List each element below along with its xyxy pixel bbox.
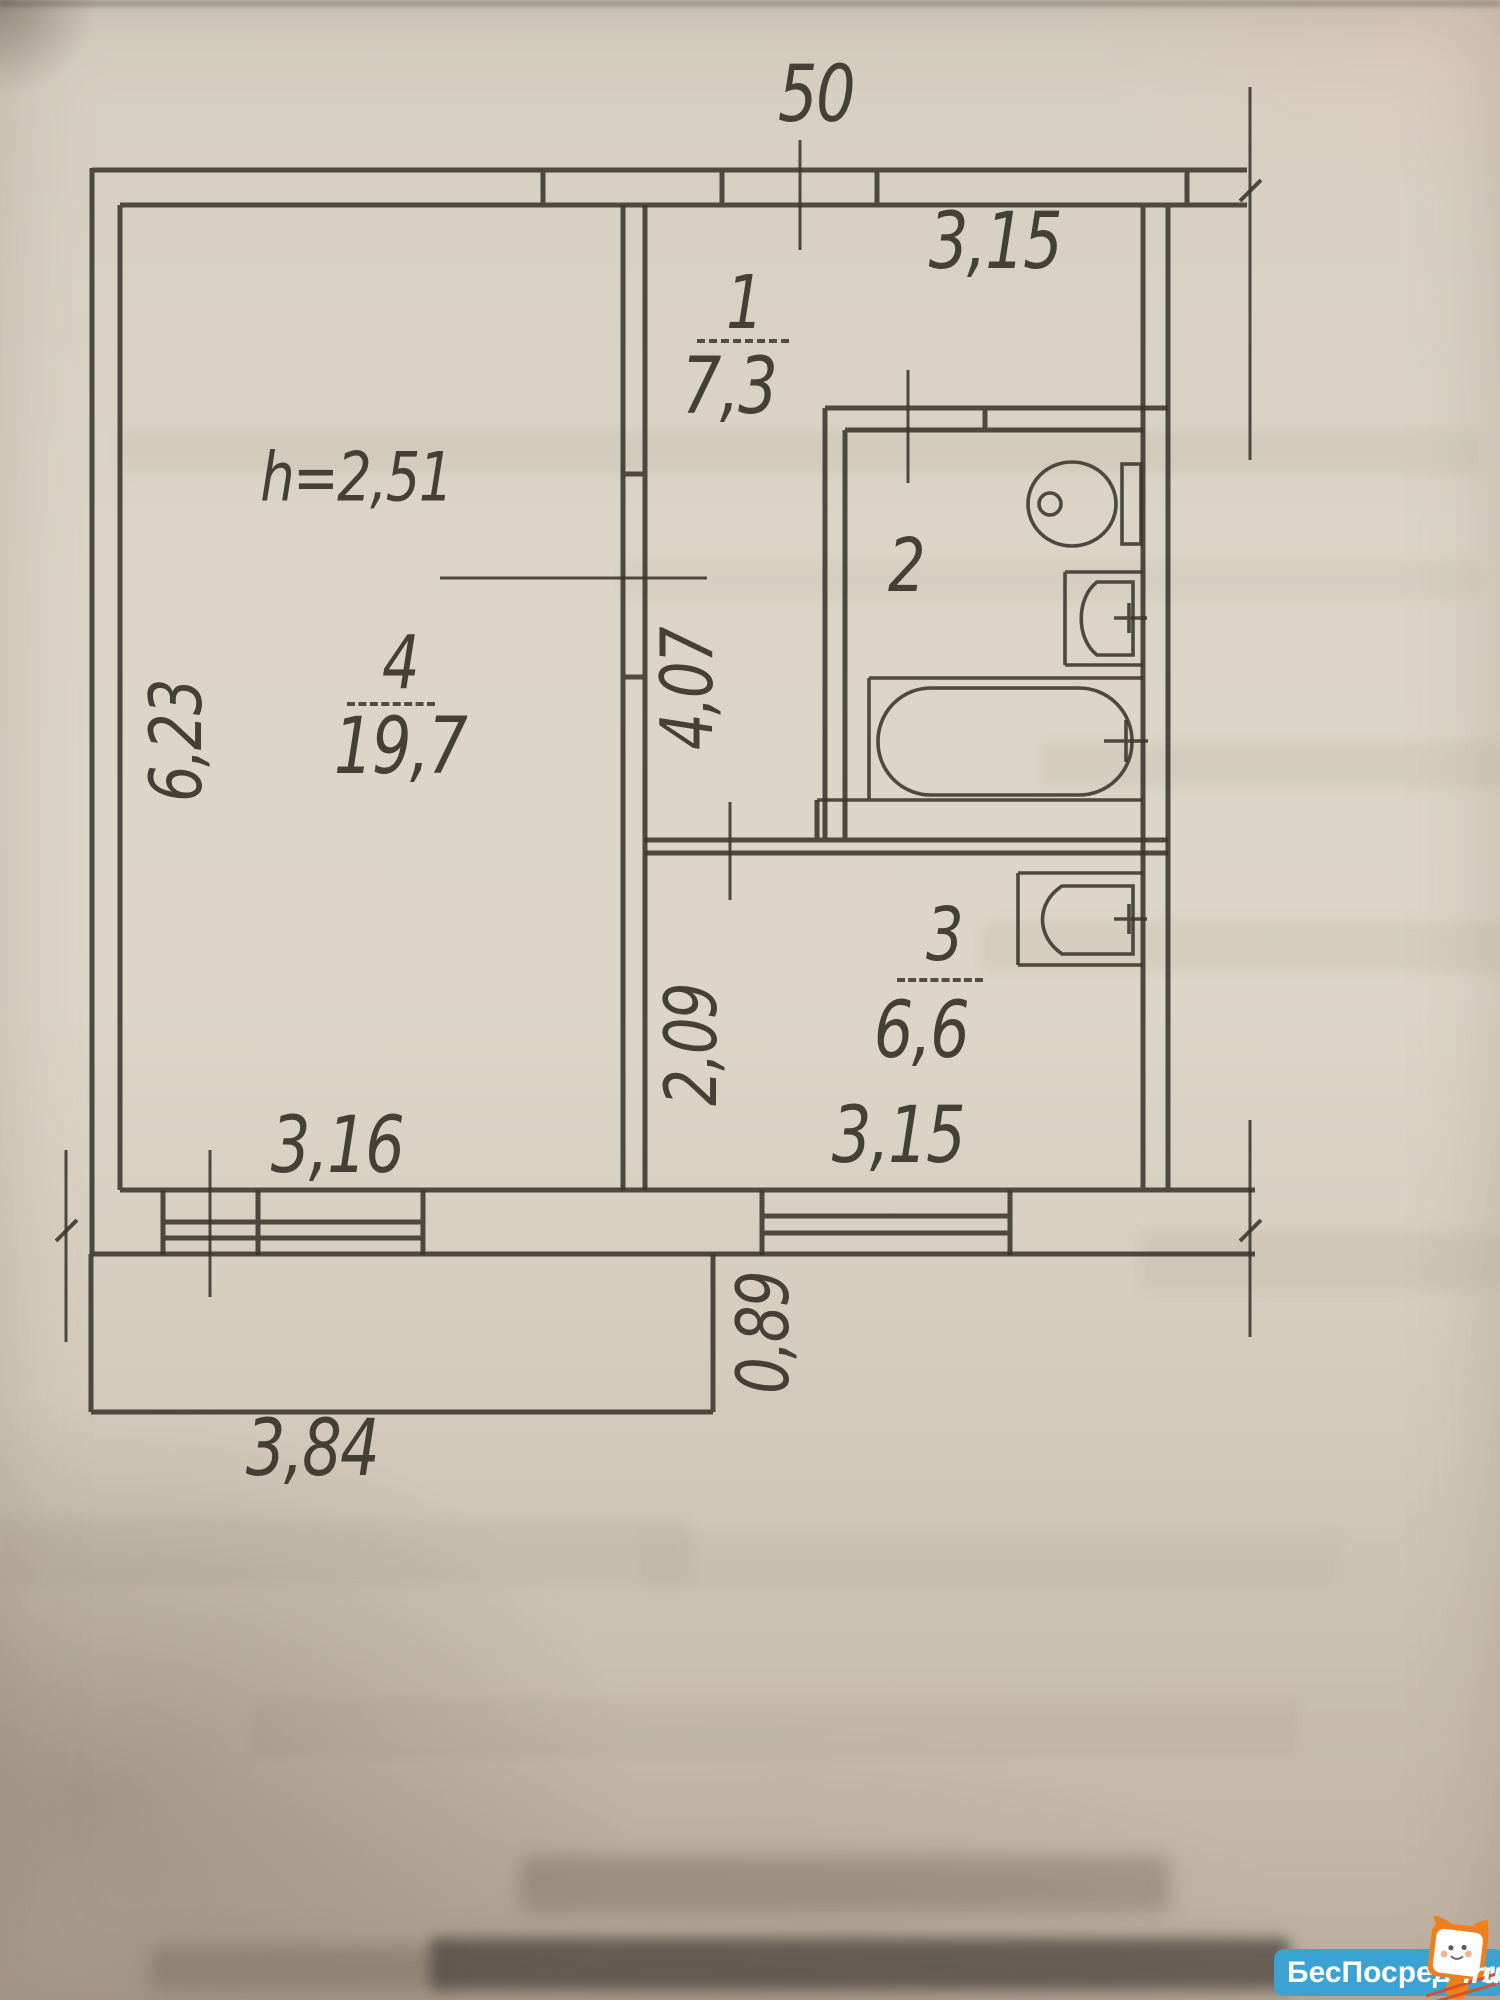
room3-number: 3 [926,892,962,978]
room1-area: 7,3 [682,342,776,432]
window-symbol [762,1190,1010,1255]
room4-area: 19,7 [334,702,467,792]
washbasin-icon [1065,572,1147,665]
dim-lower-left: 2,09 [649,984,733,1106]
bathtub-icon [817,678,1148,800]
dim-left-height: 6,23 [134,680,218,802]
dim-bottom-right: 3,15 [832,1091,965,1181]
dim-balcony-width: 3,84 [246,1404,379,1494]
floor-plan-photo: 50 3,15 1 7,3 h=2,51 2 4 19,7 6,23 4,07 … [0,0,1500,2000]
balcony-outline [91,1254,713,1412]
dim-balcony-depth: 0,89 [721,1272,805,1394]
washbasin-icon [1018,873,1147,965]
room2-number: 2 [888,523,924,609]
watermark-tld: .ru [1463,1957,1500,1991]
room3-area: 6,6 [874,986,968,1076]
dim-hall-vertical: 4,07 [645,628,729,750]
dim-top-right: 3,15 [929,197,1062,287]
dim-bottom-left: 3,16 [271,1101,404,1191]
middle-wall [623,205,645,1190]
room3-underline [897,978,983,982]
room4-number: 4 [382,620,418,706]
toilet-icon [1028,462,1141,546]
room1-number: 1 [726,260,762,346]
dim-top-small: 50 [778,50,854,140]
window-symbol [163,1190,423,1255]
ceiling-height-label: h=2,51 [260,439,452,518]
